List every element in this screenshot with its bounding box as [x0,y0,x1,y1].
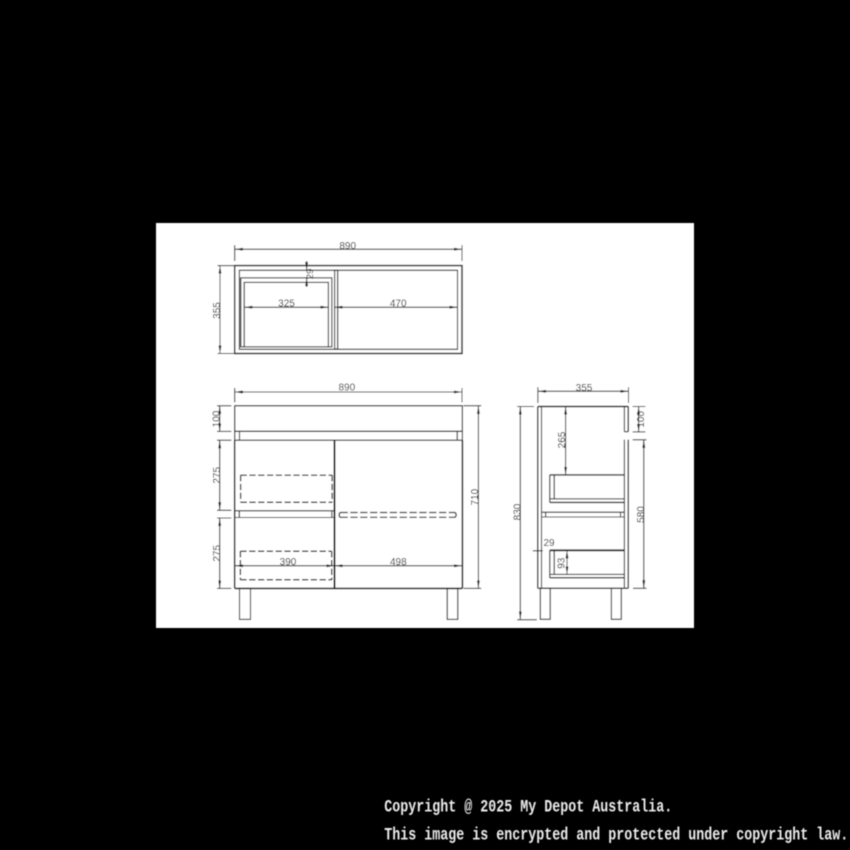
svg-text:355: 355 [212,302,223,319]
svg-text:265: 265 [557,431,568,448]
svg-text:470: 470 [390,299,407,310]
svg-text:830: 830 [513,503,524,520]
svg-text:580: 580 [636,506,647,523]
svg-text:710: 710 [470,488,481,505]
svg-text:29: 29 [305,269,316,280]
svg-text:This image is encrypted and pr: This image is encrypted and protected un… [384,825,848,845]
svg-text:29: 29 [543,538,555,549]
svg-text:355: 355 [576,383,593,394]
svg-text:100: 100 [211,410,222,427]
svg-text:890: 890 [339,241,356,252]
svg-text:93: 93 [557,557,568,569]
svg-text:100: 100 [636,411,647,428]
svg-text:275: 275 [212,467,223,484]
svg-text:498: 498 [390,557,407,568]
svg-text:890: 890 [338,383,355,394]
svg-text:275: 275 [212,545,223,562]
svg-text:390: 390 [280,557,297,568]
svg-text:Copyright @ 2025 My Depot Aust: Copyright @ 2025 My Depot Australia. [384,797,672,817]
svg-text:325: 325 [278,299,295,310]
